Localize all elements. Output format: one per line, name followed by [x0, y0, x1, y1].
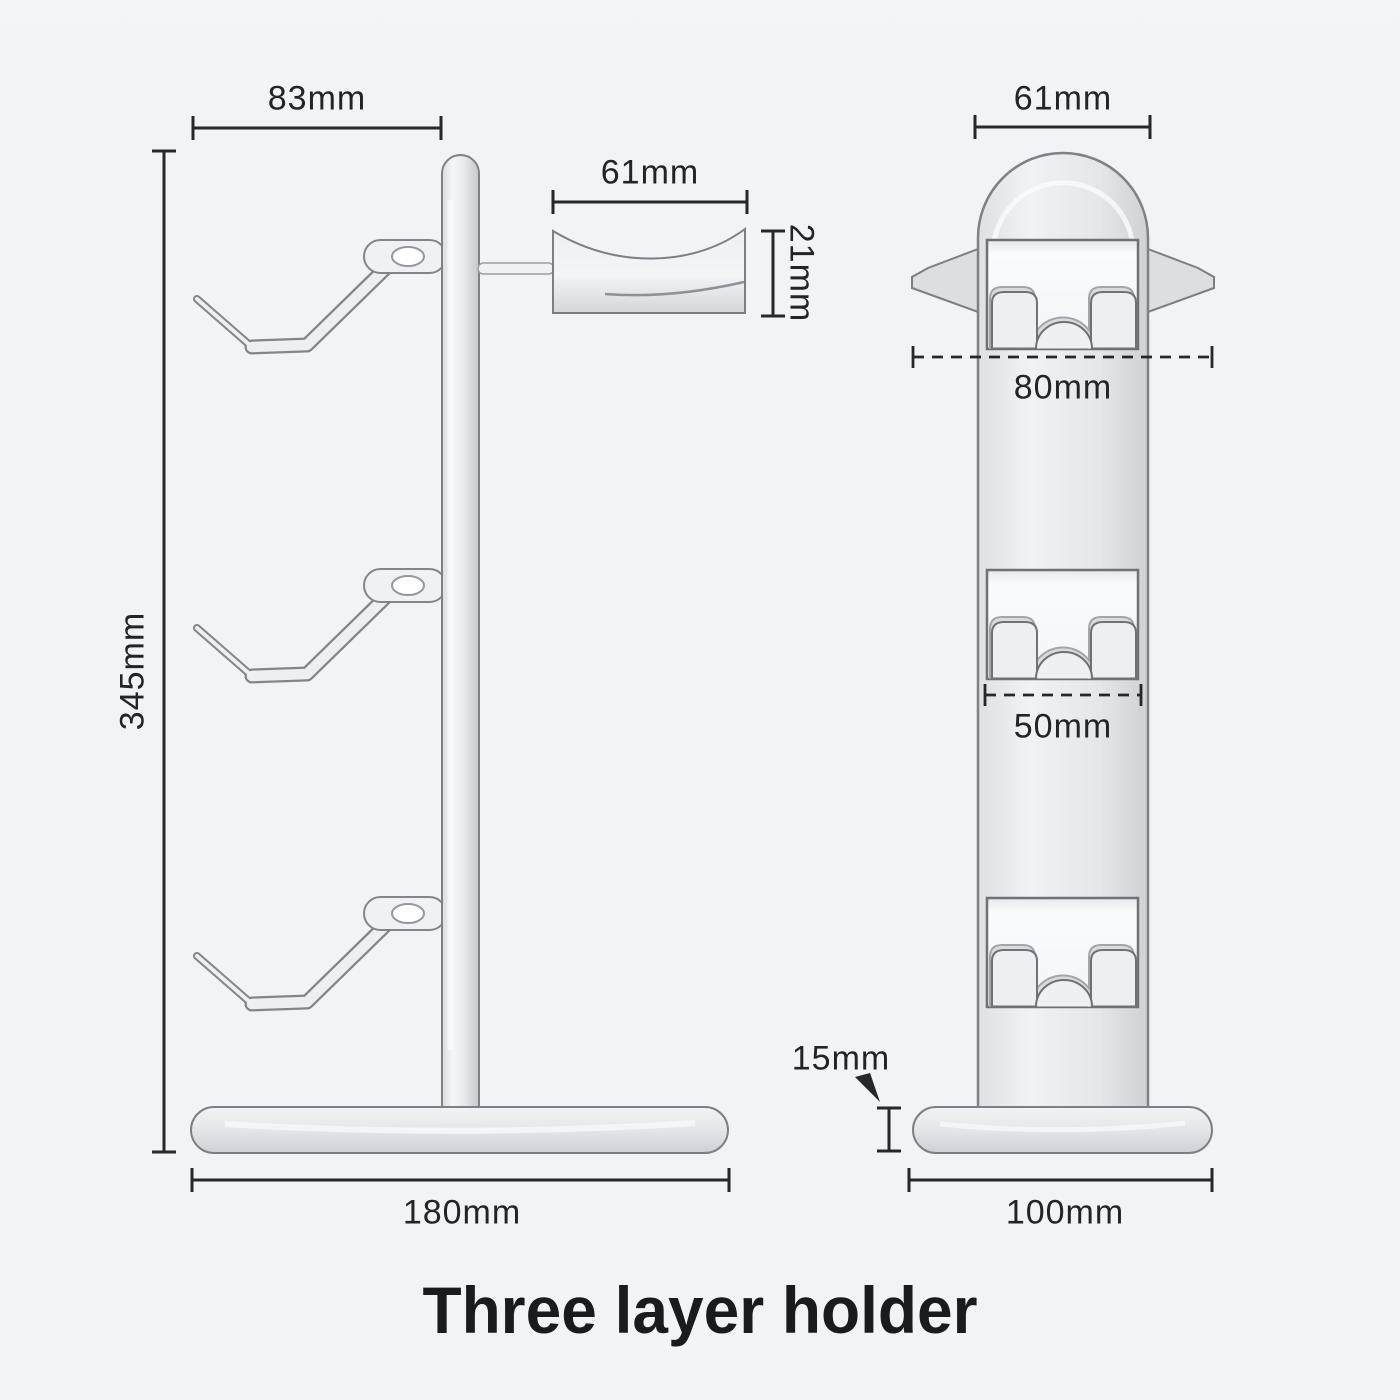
label-rest-width: 61mm [601, 154, 699, 193]
label-total-height: 345mm [114, 612, 153, 730]
front-hook-top [987, 240, 1138, 349]
label-head-width: 61mm [1014, 80, 1112, 119]
rest-arm-rod [478, 263, 554, 274]
right-wing [1148, 249, 1214, 312]
side-hook-middle [197, 569, 446, 676]
label-base-thickness: 15mm [792, 1040, 890, 1079]
front-view-figure [912, 153, 1214, 1153]
side-hook-top [197, 240, 446, 347]
label-base-length: 180mm [403, 1194, 521, 1233]
label-rest-height: 21mm [782, 224, 821, 322]
label-hook-outer-span: 80mm [1014, 369, 1112, 408]
page-title: Three layer holder [422, 1272, 977, 1348]
dim-line-100mm [909, 1168, 1212, 1192]
product-dimension-diagram: 83mm 61mm 21mm 345mm 180mm 61mm 80mm 50m… [0, 0, 1400, 1400]
dim-line-345mm [152, 151, 176, 1152]
side-hook-bottom [197, 897, 446, 1004]
headphone-rest [553, 229, 745, 313]
dim-line-61mm-head [975, 115, 1150, 139]
front-hook-middle [987, 570, 1138, 679]
left-wing [912, 249, 978, 312]
front-hook-bottom [987, 898, 1138, 1007]
dim-line-61mm-rest [553, 190, 747, 214]
side-view-figure [191, 155, 745, 1153]
technical-drawing [0, 0, 1400, 1400]
dim-line-180mm [192, 1168, 729, 1192]
label-base-width: 100mm [1006, 1194, 1124, 1233]
dim-line-15mm [855, 1073, 901, 1151]
dim-line-83mm [193, 116, 441, 140]
label-hook-inner-span: 50mm [1014, 708, 1112, 747]
label-hook-depth: 83mm [268, 80, 366, 119]
